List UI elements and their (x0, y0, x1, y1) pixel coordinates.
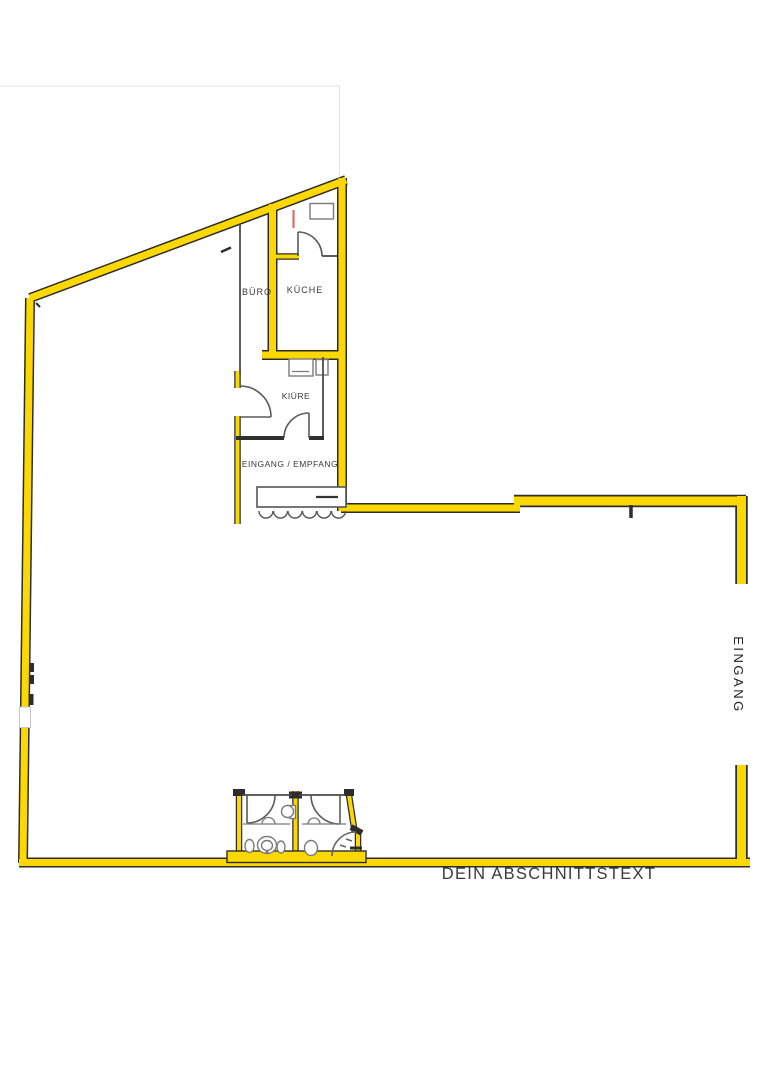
toilet (245, 840, 254, 853)
kitchen-door (298, 232, 337, 256)
corner-tick (36, 303, 40, 307)
reception-label: EINGANG / EMPFANG (242, 459, 338, 469)
wc-left-room (243, 795, 296, 854)
toilet (277, 841, 285, 853)
middle-room-label: KIÜRE (282, 391, 310, 401)
diagonal-wall-tick (221, 248, 231, 253)
scan-page-edge (0, 86, 340, 177)
wall-edges (19, 178, 750, 863)
left-wall-tick-marks (29, 663, 35, 705)
toilet (305, 841, 318, 856)
left-wall-opening (20, 707, 31, 728)
kitchen-cupboard (310, 204, 334, 220)
round-sink (282, 806, 294, 818)
floor-plan-drawing: BÜRO KÜCHE KIÜRE EINGANG / EMPFANG EINGA… (0, 0, 764, 1080)
entrance-label: EINGANG (731, 636, 746, 713)
reception-room (257, 487, 346, 518)
reception-chairs (259, 511, 346, 518)
hall-door (240, 386, 271, 417)
wall-fills (19, 178, 750, 863)
office-label: BÜRO (242, 287, 272, 297)
floor-plan-page: BÜRO KÜCHE KIÜRE EINGANG / EMPFANG EINGA… (0, 0, 764, 1080)
section-text-label: DEIN ABSCHNITTSTEXT (442, 865, 656, 883)
kitchen-label: KÜCHE (287, 285, 324, 295)
middle-room-door (284, 413, 309, 438)
